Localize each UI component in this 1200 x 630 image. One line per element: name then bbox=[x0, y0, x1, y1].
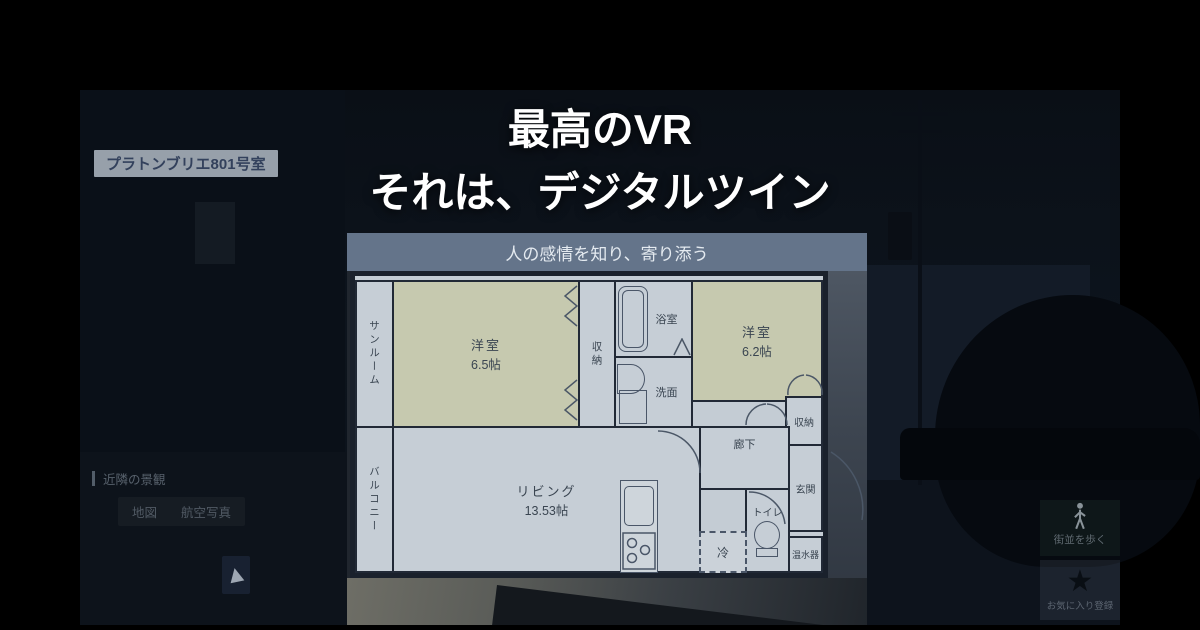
room-entrance: 玄関 bbox=[788, 444, 823, 532]
entrance-door-arc bbox=[829, 448, 865, 523]
favorite-button[interactable]: ★ お気に入り登録 bbox=[1040, 560, 1120, 620]
room-closet1: 収納 bbox=[578, 280, 616, 428]
bath-folding-door-icon bbox=[673, 338, 691, 356]
tab-aerial-photo[interactable]: 航空写真 bbox=[181, 502, 231, 521]
floorplan-card: 人の感情を知り、寄り添う サンルーム 洋室 6.5帖 収納 浴室 bbox=[347, 233, 867, 625]
card-tagline: 人の感情を知り、寄り添う bbox=[347, 233, 867, 271]
walk-street-button[interactable]: 街並を歩く bbox=[1040, 500, 1120, 556]
tab-map[interactable]: 地図 bbox=[132, 502, 157, 521]
section-accent-bar bbox=[92, 471, 95, 486]
kitchen-sink-icon bbox=[624, 486, 654, 526]
living-door-arc bbox=[657, 430, 701, 474]
walk-person-icon bbox=[1072, 502, 1088, 530]
car-silhouette bbox=[900, 428, 1200, 480]
headline-line1: 最高のVR bbox=[0, 98, 1200, 161]
toilet-tank-icon bbox=[756, 548, 778, 557]
neighborhood-section: 近隣の景観 bbox=[92, 469, 166, 488]
room-balcony: バルコニー bbox=[355, 426, 394, 573]
map-tab-bar: 地図 航空写真 bbox=[118, 497, 245, 526]
bathtub-inner bbox=[622, 290, 644, 348]
room-closet2: 収納 bbox=[785, 396, 823, 446]
headline-line2: それは、デジタルツイン bbox=[0, 161, 1200, 224]
room-bedroom1: 洋室 6.5帖 bbox=[392, 280, 580, 428]
walk-street-label: 街並を歩く bbox=[1054, 532, 1107, 547]
headline: 最高のVR それは、デジタルツイン bbox=[0, 98, 1200, 224]
room-sunroom: サンルーム bbox=[355, 280, 394, 428]
room-water-heater: 温水器 bbox=[788, 536, 823, 573]
favorite-label: お気に入り登録 bbox=[1047, 598, 1114, 612]
fridge-space: 冷 bbox=[699, 531, 747, 573]
room-hall: 廊下 bbox=[699, 426, 790, 490]
toilet-door-arc bbox=[747, 490, 787, 526]
neighborhood-heading: 近隣の景観 bbox=[103, 469, 166, 488]
washer-pan-icon bbox=[619, 390, 647, 424]
closet-fold-symbol bbox=[564, 284, 578, 330]
closet2-double-door-arc bbox=[787, 372, 823, 396]
closet-fold-symbol bbox=[564, 378, 578, 424]
stove-icon bbox=[622, 532, 656, 570]
stage: プラトンブリエ801号室 近隣の景観 地図 航空写真 街並を歩く ★ お気に入り… bbox=[0, 0, 1200, 630]
map-arrow-icon[interactable] bbox=[222, 556, 250, 594]
favorite-star-icon: ★ bbox=[1067, 568, 1094, 597]
bedroom2-double-door-arc bbox=[745, 402, 788, 426]
floorplan: サンルーム 洋室 6.5帖 収納 浴室 洗面 洋室 6.2帖 bbox=[350, 271, 828, 578]
